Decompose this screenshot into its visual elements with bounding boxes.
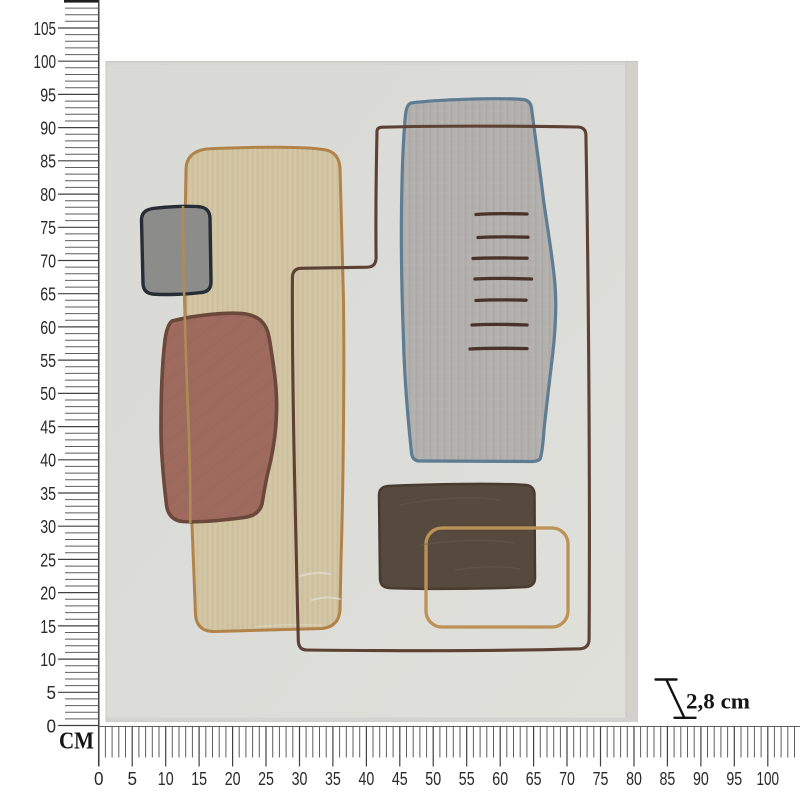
svg-text:85: 85 xyxy=(40,151,56,172)
svg-text:35: 35 xyxy=(325,768,341,789)
svg-text:10: 10 xyxy=(158,768,174,789)
svg-text:40: 40 xyxy=(40,450,56,471)
svg-text:55: 55 xyxy=(459,768,475,789)
svg-text:75: 75 xyxy=(40,217,56,238)
svg-text:90: 90 xyxy=(40,118,56,139)
svg-text:100: 100 xyxy=(757,768,780,789)
svg-text:0: 0 xyxy=(47,715,57,736)
svg-text:10: 10 xyxy=(40,649,56,670)
svg-text:15: 15 xyxy=(40,616,56,637)
svg-text:95: 95 xyxy=(726,768,742,789)
svg-text:0: 0 xyxy=(94,768,104,789)
svg-text:20: 20 xyxy=(40,583,56,604)
svg-text:CM: CM xyxy=(59,729,94,755)
svg-text:80: 80 xyxy=(626,768,642,789)
svg-text:100: 100 xyxy=(34,51,57,72)
svg-text:85: 85 xyxy=(660,768,676,789)
svg-text:40: 40 xyxy=(359,768,375,789)
svg-text:35: 35 xyxy=(40,483,56,504)
svg-text:5: 5 xyxy=(47,682,57,703)
svg-text:45: 45 xyxy=(40,417,56,438)
svg-text:25: 25 xyxy=(258,768,274,789)
svg-text:2,8 cm: 2,8 cm xyxy=(686,689,750,714)
svg-text:5: 5 xyxy=(127,768,137,789)
svg-text:30: 30 xyxy=(40,516,56,537)
svg-text:20: 20 xyxy=(225,768,241,789)
svg-text:25: 25 xyxy=(40,549,56,570)
svg-text:60: 60 xyxy=(492,768,508,789)
svg-text:80: 80 xyxy=(40,184,56,205)
svg-text:45: 45 xyxy=(392,768,408,789)
svg-text:70: 70 xyxy=(559,768,575,789)
svg-text:60: 60 xyxy=(40,317,56,338)
svg-text:65: 65 xyxy=(526,768,542,789)
svg-text:65: 65 xyxy=(40,284,56,305)
svg-text:70: 70 xyxy=(40,250,56,271)
svg-text:50: 50 xyxy=(40,383,56,404)
svg-text:95: 95 xyxy=(40,84,56,105)
svg-text:30: 30 xyxy=(292,768,308,789)
svg-text:15: 15 xyxy=(191,768,207,789)
svg-text:50: 50 xyxy=(425,768,441,789)
svg-text:75: 75 xyxy=(593,768,609,789)
svg-text:55: 55 xyxy=(40,350,56,371)
svg-text:105: 105 xyxy=(34,18,57,39)
svg-text:90: 90 xyxy=(693,768,709,789)
